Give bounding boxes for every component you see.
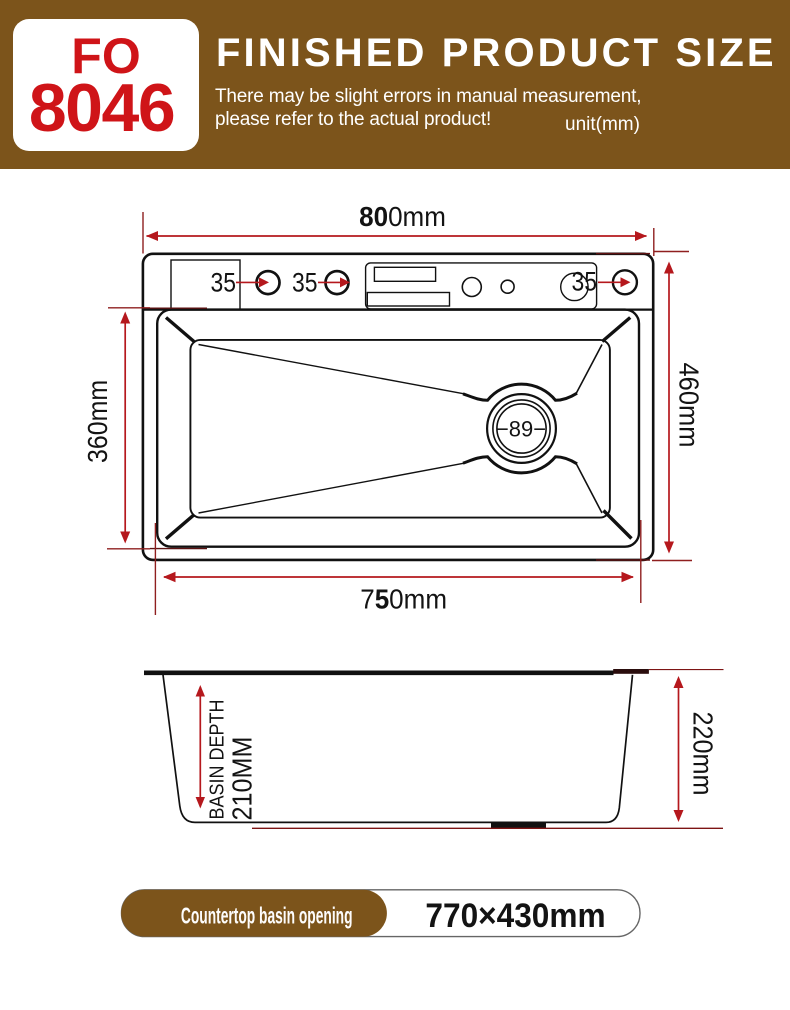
svg-text:210MM: 210MM [226,737,258,821]
svg-text:360mm: 360mm [82,380,114,463]
svg-text:220mm: 220mm [687,712,719,796]
svg-text:35: 35 [571,267,597,297]
svg-text:800mm: 800mm [359,201,446,232]
svg-text:35: 35 [210,268,236,298]
svg-text:750mm: 750mm [360,583,447,614]
svg-text:−89−: −89− [496,416,546,441]
svg-text:460mm: 460mm [673,363,704,448]
svg-text:770×430mm: 770×430mm [425,896,605,934]
svg-text:35: 35 [292,268,318,298]
svg-text:Countertop basin opening: Countertop basin opening [181,904,353,929]
